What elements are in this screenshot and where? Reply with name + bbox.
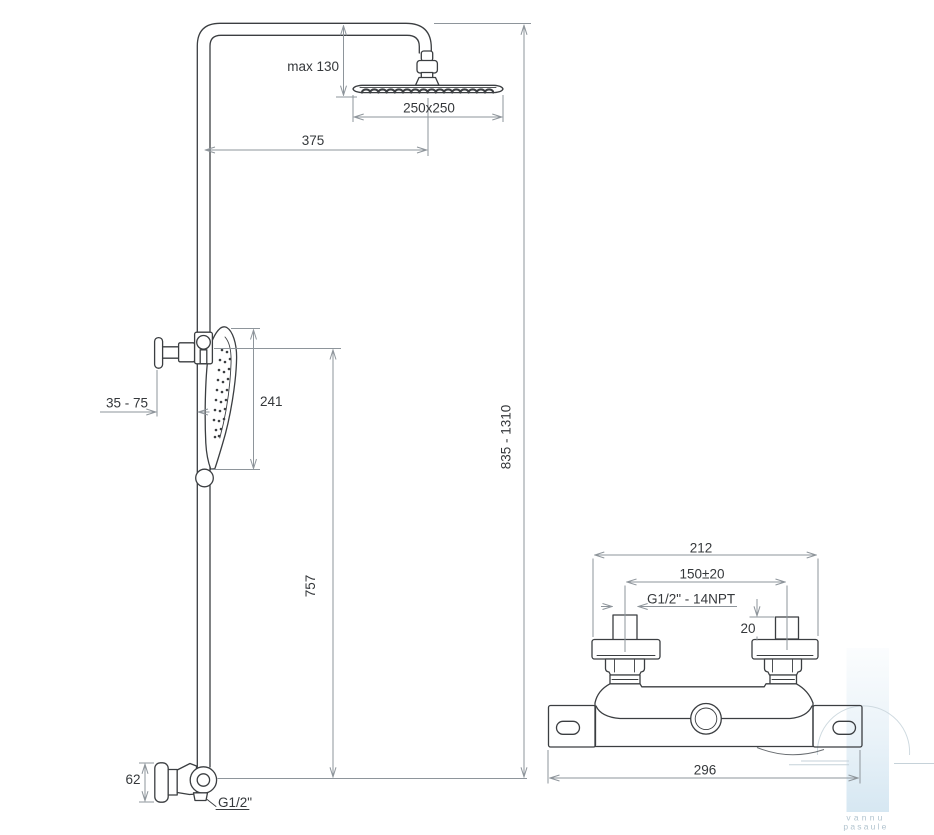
shower-system-technical-drawing: vannu pasaule <box>0 0 934 835</box>
drawing-canvas: vannu pasaule <box>0 0 934 835</box>
overhead-shower-head <box>353 85 503 92</box>
inlet-nut-right <box>765 659 802 675</box>
slot-left <box>557 721 580 734</box>
head-connector <box>416 51 440 85</box>
label-head-size: 250x250 <box>403 101 455 116</box>
dim-overall-height <box>434 24 531 777</box>
label-column-inlet-thread: G1/2" <box>218 795 252 810</box>
inlet-nut-left <box>606 659 645 675</box>
label-wall-offset: 35 - 75 <box>106 396 148 411</box>
inlet-right <box>752 617 818 684</box>
shower-column-view <box>155 23 503 809</box>
inlet-flange-left <box>592 640 660 660</box>
dim-riser-height <box>214 349 341 777</box>
watermark-bar <box>847 648 890 812</box>
mixer-view <box>549 615 863 755</box>
slider-bracket <box>195 332 213 364</box>
inlet-left <box>592 615 660 684</box>
label-riser-height: 757 <box>303 575 318 598</box>
label-head-drop: max 130 <box>287 59 339 74</box>
label-arm-reach: 375 <box>302 133 325 148</box>
wall-bracket <box>155 338 195 369</box>
label-mixer-inlet-thread: G1/2" - 14NPT <box>647 592 735 607</box>
label-elbow-offset: 62 <box>125 772 140 787</box>
glide-ball <box>196 469 214 487</box>
label-flange-span: 212 <box>690 541 713 556</box>
label-handset-length: 241 <box>260 394 283 409</box>
label-overall-width: 296 <box>694 763 717 778</box>
label-overall-height: 835 - 1310 <box>499 405 514 470</box>
thread-leader-line <box>207 799 217 807</box>
mounting-plate-left <box>549 706 596 748</box>
watermark-text-line2: pasaule <box>843 822 888 832</box>
label-stub-length: 20 <box>740 621 755 636</box>
dim-elbow-offset <box>139 763 154 802</box>
dim-head-drop <box>336 26 357 97</box>
label-inlet-centers: 150±20 <box>680 567 725 582</box>
cartridge-cap <box>691 704 722 735</box>
inlet-flange-right <box>752 640 818 660</box>
mixer-outlet-shadow <box>757 748 824 755</box>
